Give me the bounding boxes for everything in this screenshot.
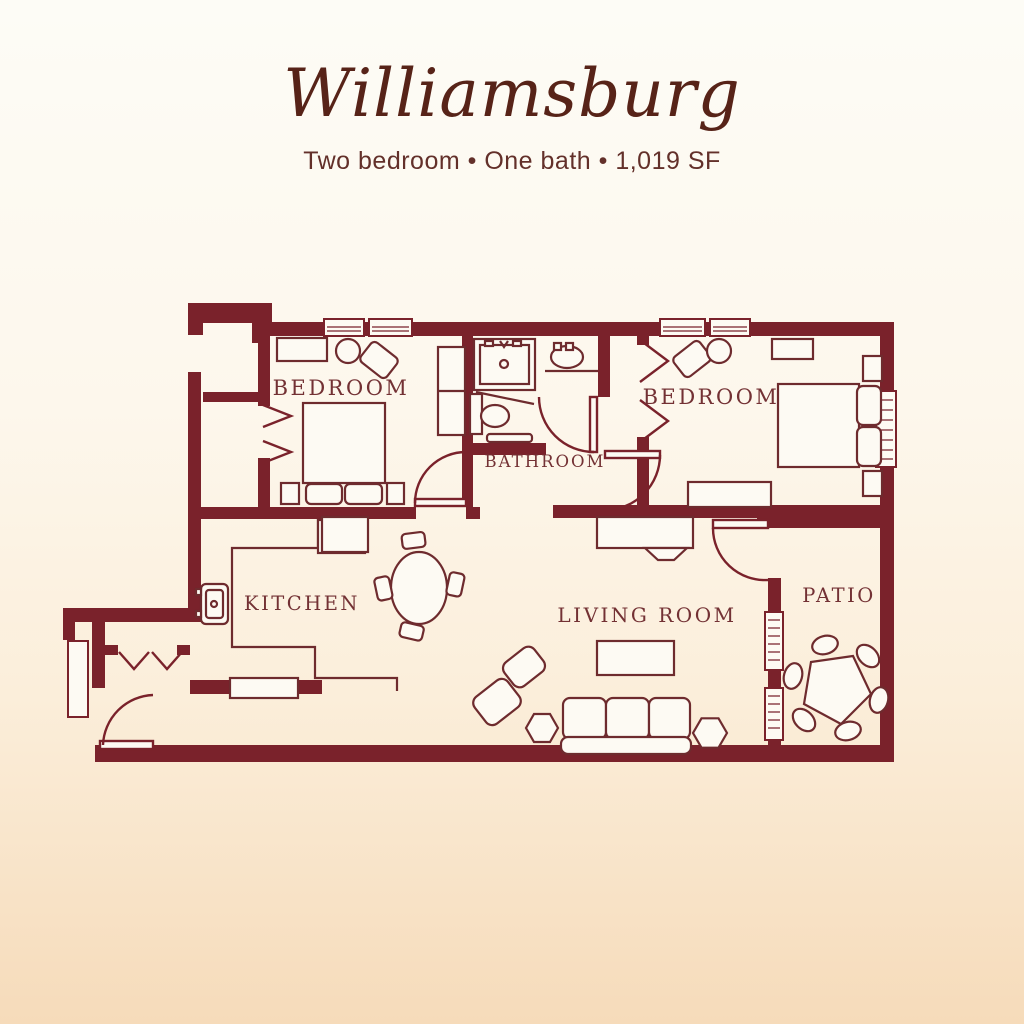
label-kitchen: KITCHEN xyxy=(244,592,360,615)
label-patio: PATIO xyxy=(802,584,876,607)
door-patio xyxy=(713,520,768,580)
door-bedroom-right xyxy=(605,451,660,510)
shower xyxy=(474,339,535,404)
bath-mat xyxy=(487,434,532,442)
pillow xyxy=(857,386,881,425)
chair xyxy=(358,340,399,380)
nightstand xyxy=(281,483,299,504)
sofa xyxy=(561,698,691,754)
dining-set xyxy=(374,532,465,642)
dishwasher xyxy=(230,678,298,698)
nightstand xyxy=(387,483,404,504)
label-bedroom-right: BEDROOM xyxy=(643,385,780,409)
nightstand xyxy=(863,356,882,381)
patio-table-set xyxy=(781,633,891,743)
bed xyxy=(778,384,859,467)
pillow xyxy=(857,427,881,466)
door-entry xyxy=(100,695,153,749)
pillow xyxy=(345,484,382,504)
label-living-room: LIVING ROOM xyxy=(557,603,736,627)
label-bathroom: BATHROOM xyxy=(485,452,606,471)
tv-cabinet xyxy=(597,517,693,560)
label-bedroom-left: BEDROOM xyxy=(273,376,410,400)
dresser xyxy=(277,338,327,361)
long-dresser xyxy=(688,482,771,507)
closet-bifold-bedroom-left xyxy=(263,405,291,463)
floorplan-page: Williamsburg Two bedroom • One bath • 1,… xyxy=(0,0,1024,1024)
window-entry xyxy=(68,641,88,717)
coffee-table xyxy=(597,641,674,675)
bed xyxy=(303,403,385,483)
closet-bifold-entry xyxy=(119,652,182,669)
pillow xyxy=(306,484,342,504)
stool-table xyxy=(336,339,360,363)
cabinet xyxy=(322,517,368,552)
window-patio-1 xyxy=(765,612,783,670)
wardrobe xyxy=(438,347,465,435)
door-bedroom-left xyxy=(415,452,466,506)
chair xyxy=(671,339,712,379)
side-table-hex xyxy=(693,718,727,747)
bathroom-sink xyxy=(545,343,598,371)
nightstand xyxy=(863,471,882,496)
dresser xyxy=(772,339,813,359)
floorplan-drawing: BEDROOM BEDROOM BATHROOM KITCHEN LIVING … xyxy=(0,0,1024,1024)
stool-table xyxy=(707,339,731,363)
door-bathroom xyxy=(539,397,597,452)
side-table-hex xyxy=(526,714,558,742)
toilet xyxy=(470,394,509,434)
kitchen-sink xyxy=(196,584,228,624)
